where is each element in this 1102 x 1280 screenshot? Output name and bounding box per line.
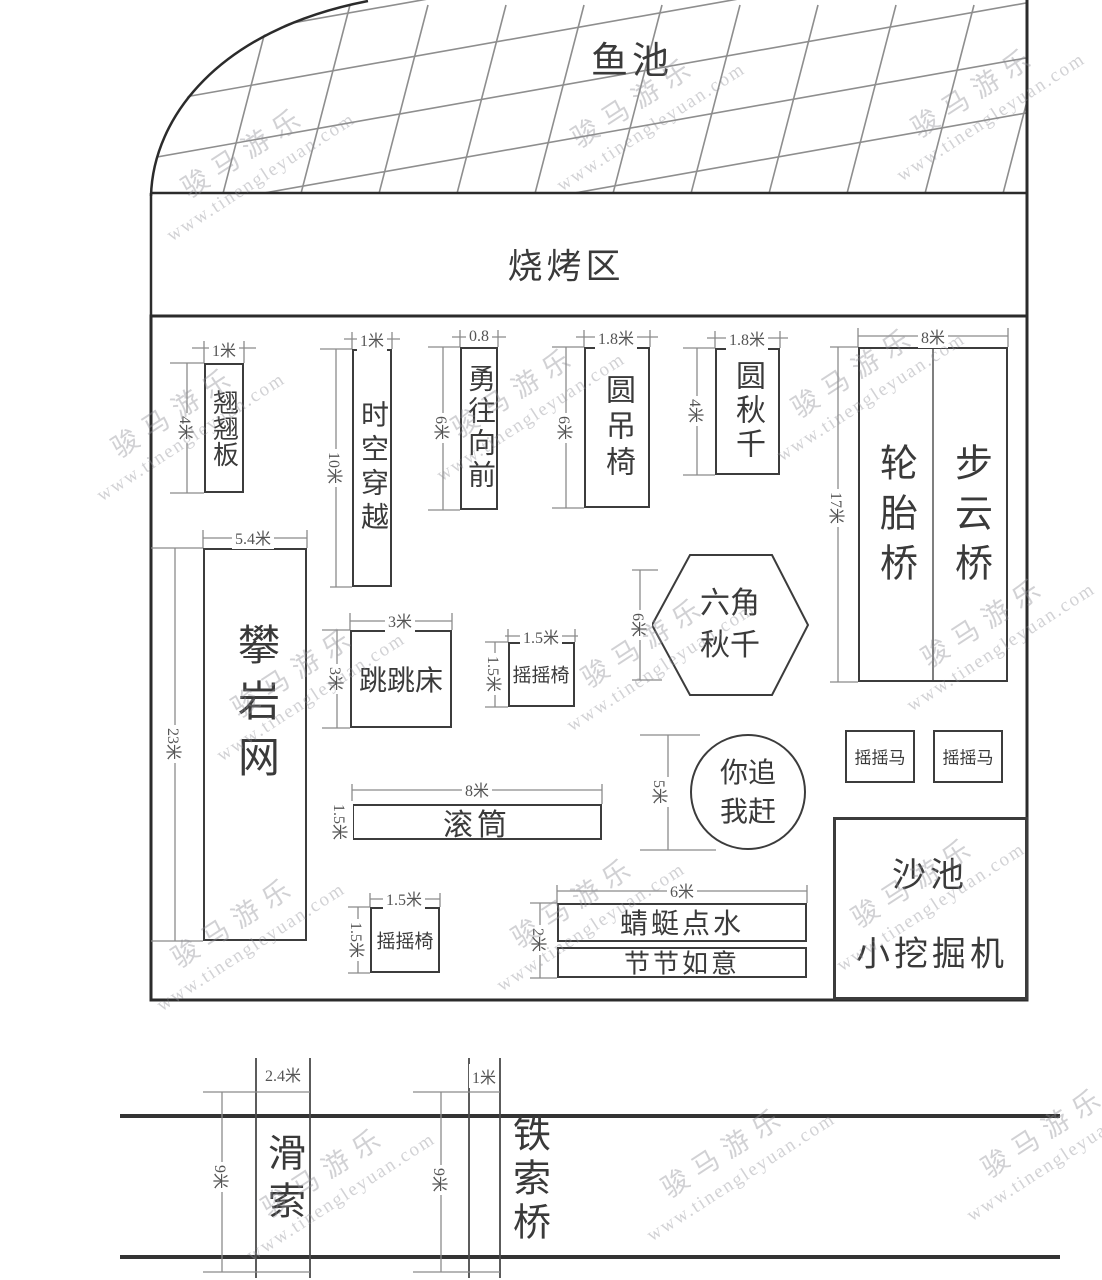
dim-iron-chain-bridge-width: 1米 <box>469 1064 499 1088</box>
rocking-chair-bottom-label: 摇摇椅 <box>376 927 433 954</box>
dim-forge-ahead-height: 6米 <box>431 413 455 443</box>
dim-seesaw-height: 4米 <box>175 413 199 443</box>
roller-label: 滚筒 <box>443 800 511 844</box>
dim-roller-width: 8米 <box>462 777 492 801</box>
bbq-area-label: 烧烤区 <box>507 239 624 290</box>
dim-dragonfly-width: 6米 <box>667 878 697 902</box>
dim-bridges-height: 17米 <box>826 489 850 527</box>
playground-plan: 鱼池 烧烤区 翘翘板 时空穿越 勇往向前 圆吊椅 圆秋千 轮胎桥 步云桥 攀岩网… <box>0 0 1102 1280</box>
seesaw-label: 翘翘板 <box>206 389 243 467</box>
dim-rocking-chair-bottom-width: 1.5米 <box>383 886 425 910</box>
climbing-net-label: 攀岩网 <box>225 623 286 791</box>
hex-swing-label: 六角秋千 <box>696 583 764 667</box>
dim-bridges-width: 8米 <box>918 324 948 348</box>
tire-bridge-label: 轮胎桥 <box>868 443 923 593</box>
chase-game-label: 你追我赶 <box>717 754 780 832</box>
lucky-segments-label: 节节如意 <box>624 944 740 981</box>
forge-ahead-label: 勇往向前 <box>459 364 499 492</box>
dim-round-hanging-chair-height: 6米 <box>554 413 578 443</box>
dim-zipline-width: 2.4米 <box>262 1062 304 1086</box>
dim-trampoline-height: 3米 <box>325 664 349 694</box>
dim-rocking-chair-mid-width: 1.5米 <box>520 624 562 648</box>
fish-pond-label: 鱼池 <box>591 30 673 84</box>
dim-seesaw-width: 1米 <box>209 337 239 361</box>
dim-climbing-net-height: 23米 <box>163 725 187 763</box>
dim-time-travel-width: 1米 <box>357 327 387 351</box>
round-hanging-chair-label: 圆吊椅 <box>595 374 639 482</box>
dim-zipline-height: 9米 <box>210 1162 234 1192</box>
dim-trampoline-width: 3米 <box>385 608 415 632</box>
sand-pit-label: 沙池 <box>892 848 968 897</box>
time-travel-label: 时空穿越 <box>352 400 392 536</box>
rocking-horse-left-label: 摇摇马 <box>855 744 906 769</box>
dragonfly-label: 蜻蜓点水 <box>620 902 744 942</box>
dim-iron-chain-bridge-height: 9米 <box>429 1165 453 1195</box>
dim-time-travel-height: 10米 <box>324 449 348 487</box>
round-swing-label: 圆秋千 <box>725 360 769 462</box>
mini-excavator-label: 小挖掘机 <box>856 927 1008 976</box>
dim-rocking-chair-mid-height: 1.5米 <box>483 653 507 695</box>
trampoline-label: 跳跳床 <box>359 659 443 699</box>
dim-rocking-chair-bottom-height: 1.5米 <box>346 919 370 961</box>
dim-roller-height: 1.5米 <box>329 801 353 843</box>
dim-chase-game-height: 5米 <box>649 777 673 807</box>
dim-hex-swing-height: 6米 <box>628 610 652 640</box>
rocking-chair-mid-label: 摇摇椅 <box>512 661 569 688</box>
rocking-horse-right-label: 摇摇马 <box>943 744 994 769</box>
dim-round-swing-width: 1.8米 <box>726 326 768 350</box>
dim-round-hanging-chair-width: 1.8米 <box>595 325 637 349</box>
dim-climbing-net-width: 5.4米 <box>232 525 274 549</box>
dim-forge-ahead-width: 0.8 <box>466 328 492 346</box>
dim-dragonfly-height: 2米 <box>528 925 552 955</box>
zipline-label: 滑索 <box>256 1133 311 1229</box>
iron-chain-bridge-label: 铁索桥 <box>501 1114 556 1246</box>
dim-round-swing-height: 4米 <box>685 396 709 426</box>
cloud-step-bridge-label: 步云桥 <box>943 443 998 593</box>
